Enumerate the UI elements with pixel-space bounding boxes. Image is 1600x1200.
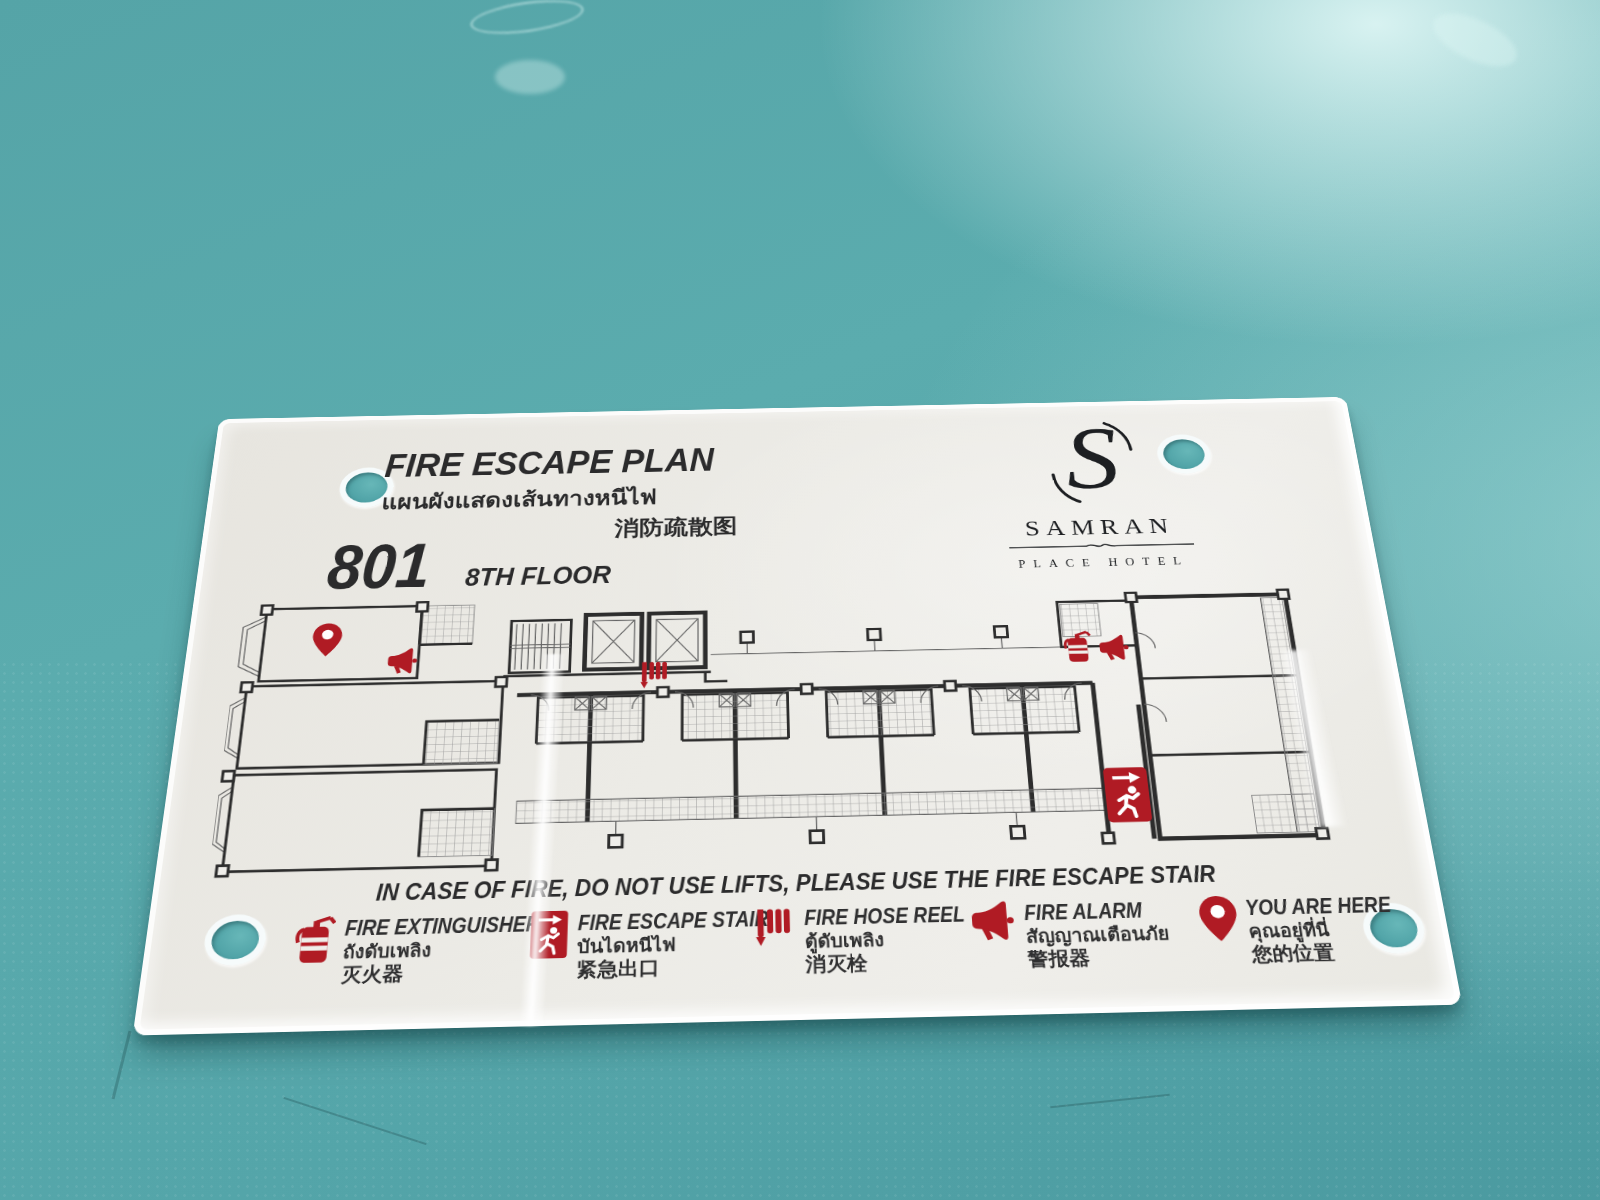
photo-fire-escape-plan-sign: FIRE ESCAPE PLAN แผนผังแสดงเส้นทางหนีไฟ … [0,0,1600,1200]
table-scratch [283,1097,426,1145]
legend-label-zh: 您的位置 [1250,939,1425,966]
plan-top-wall [711,625,1089,655]
legend-label-en: FIRE HOSE REEL [804,902,966,931]
room-row: 801 8TH FLOOR [325,530,625,599]
hotel-name: SAMRAN [989,512,1211,541]
hotel-subtitle: PLACE HOTEL [993,555,1215,571]
logo-divider [1009,539,1195,552]
legend-item-fire-alarm: FIRE ALARM สัญญาณเตือนภัย 警报器 [969,897,1174,973]
legend-label-en: FIRE ALARM [1023,898,1143,926]
plate-surface: FIRE ESCAPE PLAN แผนผังแสดงเส้นทางหนีไฟ … [133,397,1463,1036]
plan-left-wing [208,600,511,876]
table-scratch [1050,1094,1170,1109]
legend-item-fire-hose-reel: FIRE HOSE REEL ตู้ดับเพลิง 消灭栓 [751,901,995,978]
table-scratch [112,1031,132,1100]
legend-label-th: สัญญาณเตือนภัย [1025,922,1170,947]
hotel-logo-s-icon: S [1023,416,1163,512]
legend-label-en: YOU ARE HERE [1244,892,1393,920]
fire-escape-exit-marker [1103,767,1153,822]
legend-item-you-are-here: YOU ARE HERE คุณอยู่ที่นี่ 您的位置 [1197,892,1425,968]
legend-label-en: FIRE EXTINGUISHER [344,911,540,941]
you-are-here-icon [1197,896,1240,942]
title-english: FIRE ESCAPE PLAN [383,440,714,485]
drill-hole-bottom-left [202,914,269,967]
water-smear [1426,3,1524,77]
water-smear [495,60,565,94]
hotel-logo: S SAMRAN PLACE HOTEL [981,415,1215,571]
room-number: 801 [325,534,433,599]
you-are-here-pin-marker [311,623,344,656]
fire-hose-reel-marker [640,662,666,689]
fire-alarm-marker-left [387,648,418,674]
legend-label-en: FIRE ESCAPE STAIR [578,906,769,936]
water-droplet [468,0,585,40]
fire-extinguisher-icon [293,916,337,964]
legend-label-zh: 警报器 [1027,945,1173,972]
fire-alarm-marker-right [1098,635,1130,661]
fire-alarm-icon [969,901,1017,944]
plan-elevators [503,612,728,686]
floor-label: 8TH FLOOR [464,560,611,592]
legend-label-zh: 消灭栓 [805,949,995,977]
fire-hose-reel-icon [751,906,795,949]
floor-plan [208,582,1376,879]
plan-balcony [514,788,1109,849]
acrylic-sign-plate: FIRE ESCAPE PLAN แผนผังแสดงเส้นทางหนีไฟ … [133,397,1463,1036]
